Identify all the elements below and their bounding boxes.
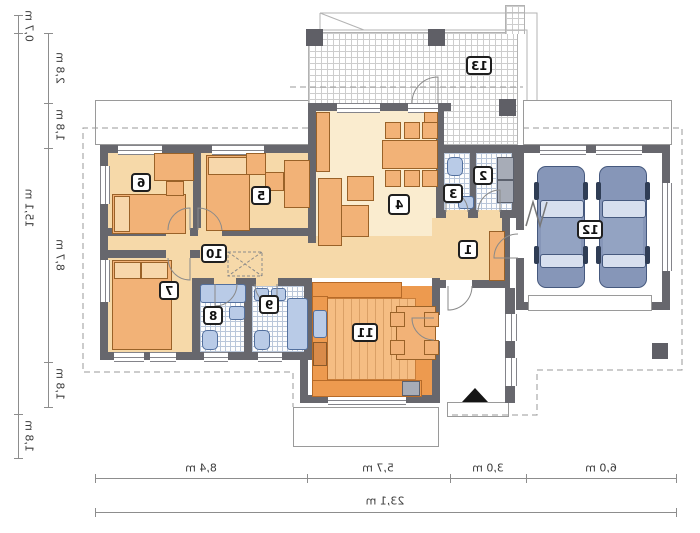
yard-post bbox=[652, 343, 668, 359]
wall bbox=[192, 278, 200, 352]
dim-label: 6,0 m bbox=[585, 462, 617, 475]
washer-icon bbox=[497, 157, 514, 180]
room-label-10: 10 bbox=[201, 244, 227, 263]
door-opening bbox=[446, 280, 472, 288]
dim-label: 1,8 m bbox=[54, 109, 67, 141]
dim-line-bottom-total bbox=[95, 512, 676, 513]
kitchen-patio bbox=[293, 407, 439, 447]
chair-icon bbox=[422, 170, 438, 187]
room-label-7: 7 bbox=[159, 281, 179, 300]
dim-label: 3,0 m bbox=[472, 462, 504, 475]
dim-label: 15,1 m bbox=[23, 189, 36, 228]
car-wheel bbox=[583, 182, 588, 200]
window bbox=[596, 145, 642, 155]
chair-icon bbox=[404, 122, 420, 139]
room-label-11: 11 bbox=[352, 323, 378, 342]
room-number: 12 bbox=[582, 223, 599, 237]
room-number: 6 bbox=[137, 176, 145, 190]
dim-label: 0,7 m bbox=[23, 10, 36, 42]
dim-tick bbox=[95, 474, 96, 483]
dim-label: 8,4 m bbox=[185, 462, 217, 475]
room-label-8: 8 bbox=[203, 306, 223, 325]
room-label-5: 5 bbox=[251, 186, 271, 205]
pillow bbox=[141, 262, 168, 279]
car-rear-window bbox=[540, 254, 584, 268]
room-label-3: 3 bbox=[443, 184, 463, 203]
car-windshield bbox=[602, 200, 646, 218]
pillow bbox=[114, 262, 141, 279]
wall bbox=[516, 145, 524, 310]
window bbox=[337, 103, 380, 113]
window bbox=[204, 352, 228, 362]
dim-label: 5,7 m bbox=[362, 462, 394, 475]
toilet-icon bbox=[447, 157, 463, 176]
dim-tick bbox=[676, 474, 677, 483]
room-label-1: 1 bbox=[458, 240, 478, 259]
dim-tick bbox=[14, 414, 23, 415]
window bbox=[114, 352, 144, 362]
dim-tick bbox=[14, 458, 23, 459]
window bbox=[662, 183, 672, 271]
desk-icon bbox=[284, 160, 310, 208]
garage-door bbox=[528, 295, 652, 311]
window bbox=[540, 145, 586, 155]
dim-label: 1,8 m bbox=[23, 420, 36, 452]
room-number: 13 bbox=[471, 59, 488, 73]
dim-tick bbox=[44, 362, 53, 363]
chair-icon bbox=[424, 312, 439, 327]
room-label-6: 6 bbox=[131, 173, 151, 192]
dim-tick bbox=[450, 474, 451, 483]
door-opening bbox=[478, 210, 500, 218]
door-opening bbox=[166, 250, 190, 258]
car-wheel bbox=[596, 246, 601, 264]
chair-icon bbox=[385, 170, 401, 187]
dim-label: 8,7 m bbox=[54, 239, 67, 271]
terrace-floor-strip bbox=[505, 5, 525, 34]
car-wheel bbox=[534, 246, 539, 264]
car-icon bbox=[599, 166, 647, 288]
dim-tick bbox=[44, 33, 53, 34]
coffee-table-icon bbox=[341, 205, 369, 237]
eave-band-garage bbox=[523, 100, 672, 145]
door-opening bbox=[446, 210, 468, 218]
fridge-icon bbox=[402, 381, 420, 396]
toilet-icon bbox=[254, 330, 270, 350]
car-wheel bbox=[645, 182, 650, 200]
sofa-icon bbox=[318, 178, 342, 246]
toilet-icon bbox=[202, 330, 218, 350]
room-number: 9 bbox=[265, 298, 273, 312]
room-number: 7 bbox=[165, 284, 173, 298]
wall bbox=[438, 145, 520, 153]
door-opening bbox=[256, 278, 278, 286]
kitchen-sink-icon bbox=[313, 310, 327, 338]
wardrobe-icon bbox=[246, 153, 266, 175]
porch-post bbox=[505, 341, 515, 358]
entrance-arrow-icon bbox=[462, 388, 488, 402]
desk-icon bbox=[154, 153, 194, 181]
room-number: 5 bbox=[257, 189, 265, 203]
dim-tick bbox=[307, 474, 308, 483]
pillow bbox=[114, 196, 130, 232]
chair-icon bbox=[424, 340, 439, 355]
dim-tick bbox=[44, 103, 53, 104]
car-wheel bbox=[596, 182, 601, 200]
terrace-column bbox=[499, 99, 516, 116]
car-wheel bbox=[583, 246, 588, 264]
dim-tick bbox=[44, 407, 53, 408]
sink-icon bbox=[229, 306, 245, 320]
roof-hip-line bbox=[320, 13, 364, 30]
dim-line-bottom bbox=[95, 478, 676, 479]
floor-plan: 1 2 3 4 5 6 7 8 9 10 11 12 13 0,7 m 15,1… bbox=[0, 0, 700, 533]
window bbox=[258, 352, 282, 362]
dim-label: 1,8 m bbox=[54, 368, 67, 400]
room-number: 2 bbox=[479, 169, 487, 183]
kitchen-counter bbox=[312, 296, 328, 382]
dim-label-total: 23,1 m bbox=[366, 495, 405, 508]
porch-post bbox=[505, 386, 515, 403]
dim-line-left-inner bbox=[48, 33, 49, 407]
dim-line-left-outer bbox=[18, 15, 19, 459]
chair-icon bbox=[166, 181, 184, 196]
stove-icon bbox=[313, 342, 327, 366]
room-number: 3 bbox=[449, 187, 457, 201]
chair-icon bbox=[390, 312, 405, 327]
room-label-12: 12 bbox=[577, 220, 603, 239]
room-number: 1 bbox=[464, 243, 472, 257]
room-label-2: 2 bbox=[473, 166, 493, 185]
terrace-column bbox=[428, 29, 445, 46]
terrace-column bbox=[306, 29, 323, 46]
chair-icon bbox=[404, 170, 420, 187]
dim-tick bbox=[95, 508, 96, 517]
car-roof bbox=[541, 216, 581, 254]
bathtub-icon bbox=[287, 298, 308, 350]
room-number: 4 bbox=[395, 198, 403, 212]
armchair-icon bbox=[347, 176, 374, 201]
car-wheel bbox=[534, 182, 539, 200]
tv-bench-icon bbox=[316, 112, 330, 172]
car-wheel bbox=[645, 246, 650, 264]
window bbox=[505, 358, 517, 386]
room-label-13: 13 bbox=[466, 56, 492, 75]
chair-icon bbox=[385, 122, 401, 139]
door-opening bbox=[516, 230, 524, 258]
dim-label: 2,8 m bbox=[54, 52, 67, 84]
car-rear-window bbox=[602, 254, 646, 268]
room-label-4: 4 bbox=[388, 194, 410, 215]
dining-table-icon bbox=[382, 140, 438, 169]
eave-band-left bbox=[95, 100, 310, 145]
wall bbox=[193, 145, 201, 236]
window bbox=[100, 166, 110, 204]
dim-tick bbox=[676, 508, 677, 517]
chair-icon bbox=[422, 122, 438, 139]
dryer-icon bbox=[497, 180, 514, 203]
window bbox=[505, 314, 517, 341]
bathtub-icon bbox=[200, 284, 246, 303]
window bbox=[150, 352, 176, 362]
dim-tick bbox=[44, 148, 53, 149]
entry-step bbox=[447, 402, 509, 417]
window bbox=[100, 260, 110, 302]
porch-post bbox=[505, 288, 515, 314]
wardrobe-icon bbox=[489, 231, 505, 281]
dim-tick bbox=[526, 474, 527, 483]
room-number: 11 bbox=[357, 326, 374, 340]
room-label-9: 9 bbox=[259, 295, 279, 314]
chair-icon bbox=[390, 340, 405, 355]
room-number: 10 bbox=[206, 247, 223, 261]
room-number: 8 bbox=[209, 309, 217, 323]
car-windshield bbox=[540, 200, 584, 218]
porch-floor bbox=[440, 288, 505, 402]
pillow bbox=[208, 157, 248, 175]
car-roof bbox=[603, 216, 643, 254]
